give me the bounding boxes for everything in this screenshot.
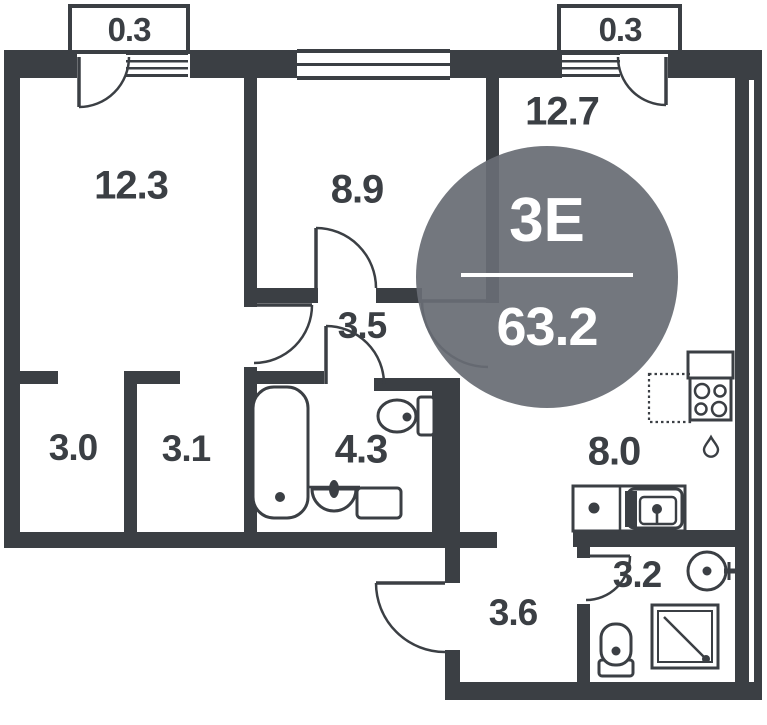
door-entry-icon	[376, 583, 445, 652]
label-ward1: 3.0	[49, 427, 97, 469]
sink-icon	[308, 480, 360, 511]
label-bath: 4.3	[335, 428, 388, 473]
label-entry: 3.6	[489, 592, 537, 634]
label-bedroom: 12.3	[94, 164, 168, 209]
label-kitchen: 8.0	[588, 430, 641, 475]
label-hall: 3.5	[338, 305, 386, 347]
unit-type-label: 3Е	[416, 188, 678, 254]
wc-sink-icon	[688, 552, 737, 590]
window-balcony-right	[562, 52, 620, 77]
door-balcony-right-icon	[618, 57, 666, 105]
floor-plan: 0.3 0.3 12.3 8.9 12.7 3.5 3.0 3.1 4.3 8.…	[0, 0, 767, 725]
unit-badge: 3Е 63.2	[416, 146, 678, 408]
wc-toilet-icon	[599, 624, 633, 676]
label-room2: 8.9	[331, 168, 384, 213]
shower-icon	[652, 605, 718, 668]
label-balcony-right: 0.3	[599, 11, 642, 49]
kitchen-sink-icon	[573, 486, 685, 531]
door-balcony-left-icon	[79, 57, 129, 107]
door-room-8-9-icon	[316, 228, 376, 288]
fridge-icon	[688, 352, 733, 378]
label-ward2: 3.1	[162, 428, 210, 470]
badge-divider	[461, 273, 633, 277]
floor-plan-svg	[0, 0, 767, 725]
bathtub-icon	[253, 387, 308, 518]
label-wc: 3.2	[613, 554, 661, 596]
label-living: 12.7	[525, 90, 599, 135]
washing-machine-icon	[357, 488, 401, 518]
kitchen-counter-dotted	[649, 374, 690, 422]
window-room-8-9	[297, 49, 450, 80]
label-balcony-left: 0.3	[108, 11, 151, 49]
window-balcony-left	[126, 52, 188, 77]
door-bedroom-icon	[254, 305, 312, 363]
stove-icon	[690, 378, 731, 420]
water-drop-icon	[704, 437, 718, 457]
unit-total-area: 63.2	[416, 298, 678, 356]
right-wall-seam	[749, 80, 754, 682]
